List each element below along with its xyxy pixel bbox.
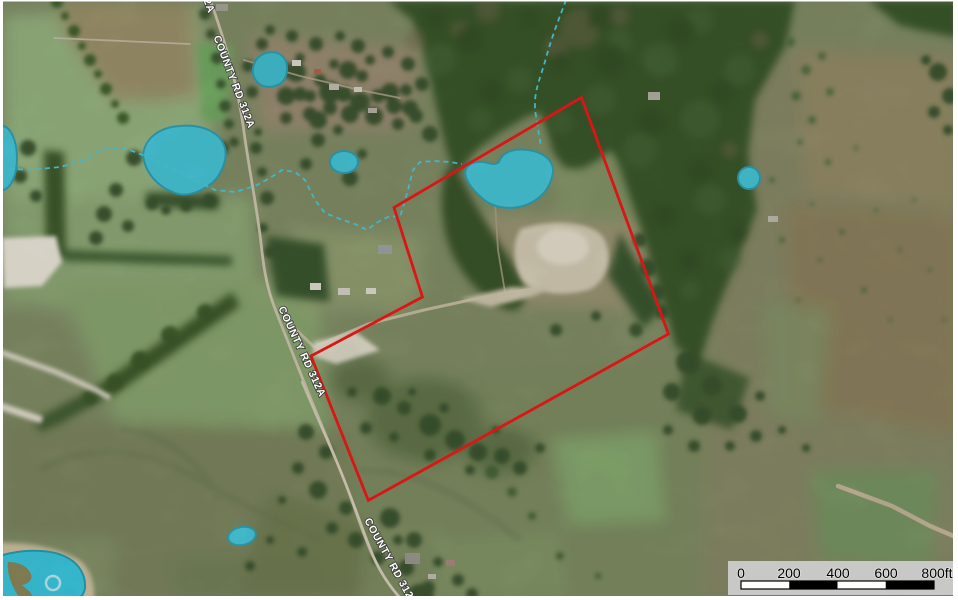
svg-text:600: 600	[874, 565, 898, 581]
svg-text:0: 0	[737, 565, 745, 581]
svg-text:200: 200	[777, 565, 801, 581]
svg-text:400: 400	[826, 565, 850, 581]
svg-text:800ft: 800ft	[921, 565, 952, 581]
